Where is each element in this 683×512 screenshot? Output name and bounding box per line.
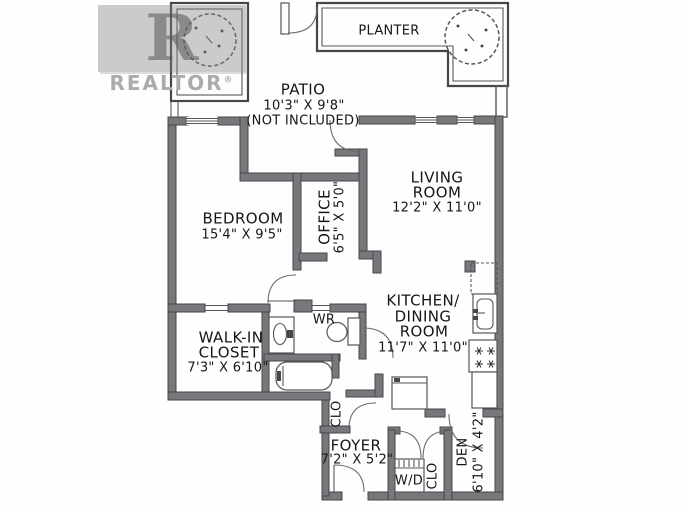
wall — [375, 374, 383, 397]
lower-counter — [472, 372, 497, 408]
floor-plan: W/D PLANTER PATIO 10'3" X 9'8" (NOT INCL… — [0, 0, 683, 512]
den-label: DEN — [456, 438, 471, 467]
wall — [373, 251, 381, 273]
wall — [299, 253, 327, 261]
realtor-logo-icon: R — [98, 5, 246, 72]
refrigerator — [392, 377, 427, 409]
patio-note: (NOT INCLUDED) — [246, 114, 359, 129]
kitchen-sink — [473, 294, 497, 333]
wall — [359, 116, 415, 124]
wall — [168, 117, 188, 125]
bathtub — [276, 362, 332, 390]
living-room-dims: 12'2" X 11'0" — [392, 201, 482, 216]
office-label: OFFICE — [316, 189, 334, 245]
cased-opening — [205, 306, 228, 311]
kitchen-dims: 11'7" X 11'0" — [378, 341, 468, 356]
kitchen-counter — [469, 263, 497, 408]
wall — [359, 149, 367, 259]
patio-label: PATIO — [281, 81, 326, 99]
vanity-sink — [269, 317, 294, 353]
office-dims: 6'5" X 5'0" — [333, 181, 348, 254]
wall — [264, 354, 340, 361]
walkin-closet-dims: 7'3" X 6'10" — [187, 361, 268, 376]
bedroom-label: BEDROOM — [202, 210, 283, 228]
cased-opening — [312, 306, 330, 311]
window — [415, 116, 437, 124]
realtor-watermark-text: REALTOR® — [96, 71, 248, 95]
living-room-label: ROOM — [413, 184, 462, 202]
wall — [437, 116, 457, 124]
wall — [322, 396, 329, 496]
kitchen-label: ROOM — [400, 323, 449, 341]
realtor-watermark-label: REALTOR — [109, 71, 223, 95]
bedroom-door-arc — [268, 275, 296, 303]
wall — [240, 173, 367, 181]
registered-mark: ® — [224, 75, 235, 85]
entry-door-arc — [334, 465, 364, 492]
walkin-closet-label: CLOSET — [199, 344, 260, 362]
wall — [262, 312, 269, 392]
wall — [168, 117, 176, 400]
foyer-closet-door-arc — [349, 403, 376, 429]
wall — [444, 430, 452, 500]
bedroom-dims: 15'4" X 9'5" — [201, 228, 282, 243]
wall — [168, 392, 330, 400]
washer-dryer: W/D — [395, 459, 424, 492]
wall — [425, 409, 445, 417]
den-dims: 6'10" X 4'2" — [472, 411, 487, 492]
bifold-door-arc — [396, 431, 421, 458]
stove — [469, 340, 497, 372]
washroom-label: WR — [313, 313, 336, 328]
wall — [332, 354, 339, 378]
foyer-dims: 7'2" X 5'2" — [321, 453, 394, 468]
planter-box-top — [317, 3, 508, 117]
patio-dims: 10'3" X 9'8" — [263, 99, 344, 114]
wall — [228, 304, 270, 312]
foyer-closet-label: CLO — [330, 401, 345, 428]
planter-label: PLANTER — [358, 24, 419, 39]
washer-dryer-label: W/D — [395, 474, 423, 489]
realtor-logo-letter: R — [145, 7, 198, 71]
window — [457, 116, 474, 124]
wall — [330, 304, 366, 312]
window — [186, 117, 218, 125]
laundry-closet-label: CLO — [426, 463, 441, 490]
wall — [168, 304, 205, 312]
wall — [294, 300, 312, 312]
